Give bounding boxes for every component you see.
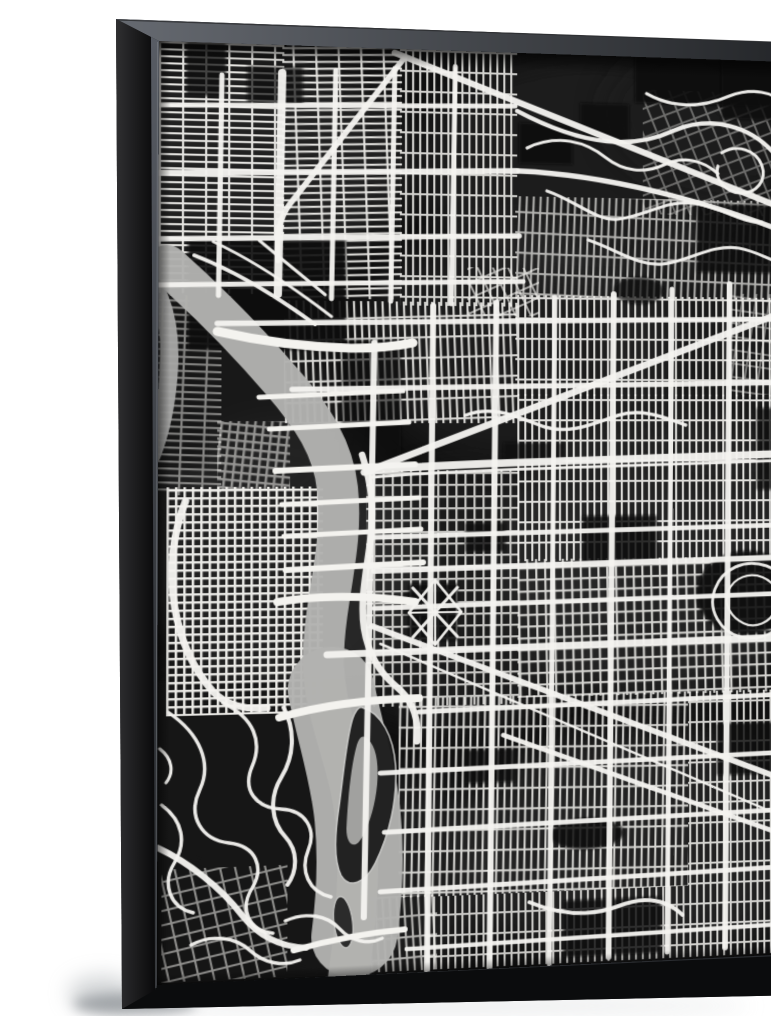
artwork-canvas [157,41,771,985]
framed-map-wall-art-photo [40,16,771,1016]
frame-left-side-face [116,19,155,1009]
street-map-art [157,41,771,985]
